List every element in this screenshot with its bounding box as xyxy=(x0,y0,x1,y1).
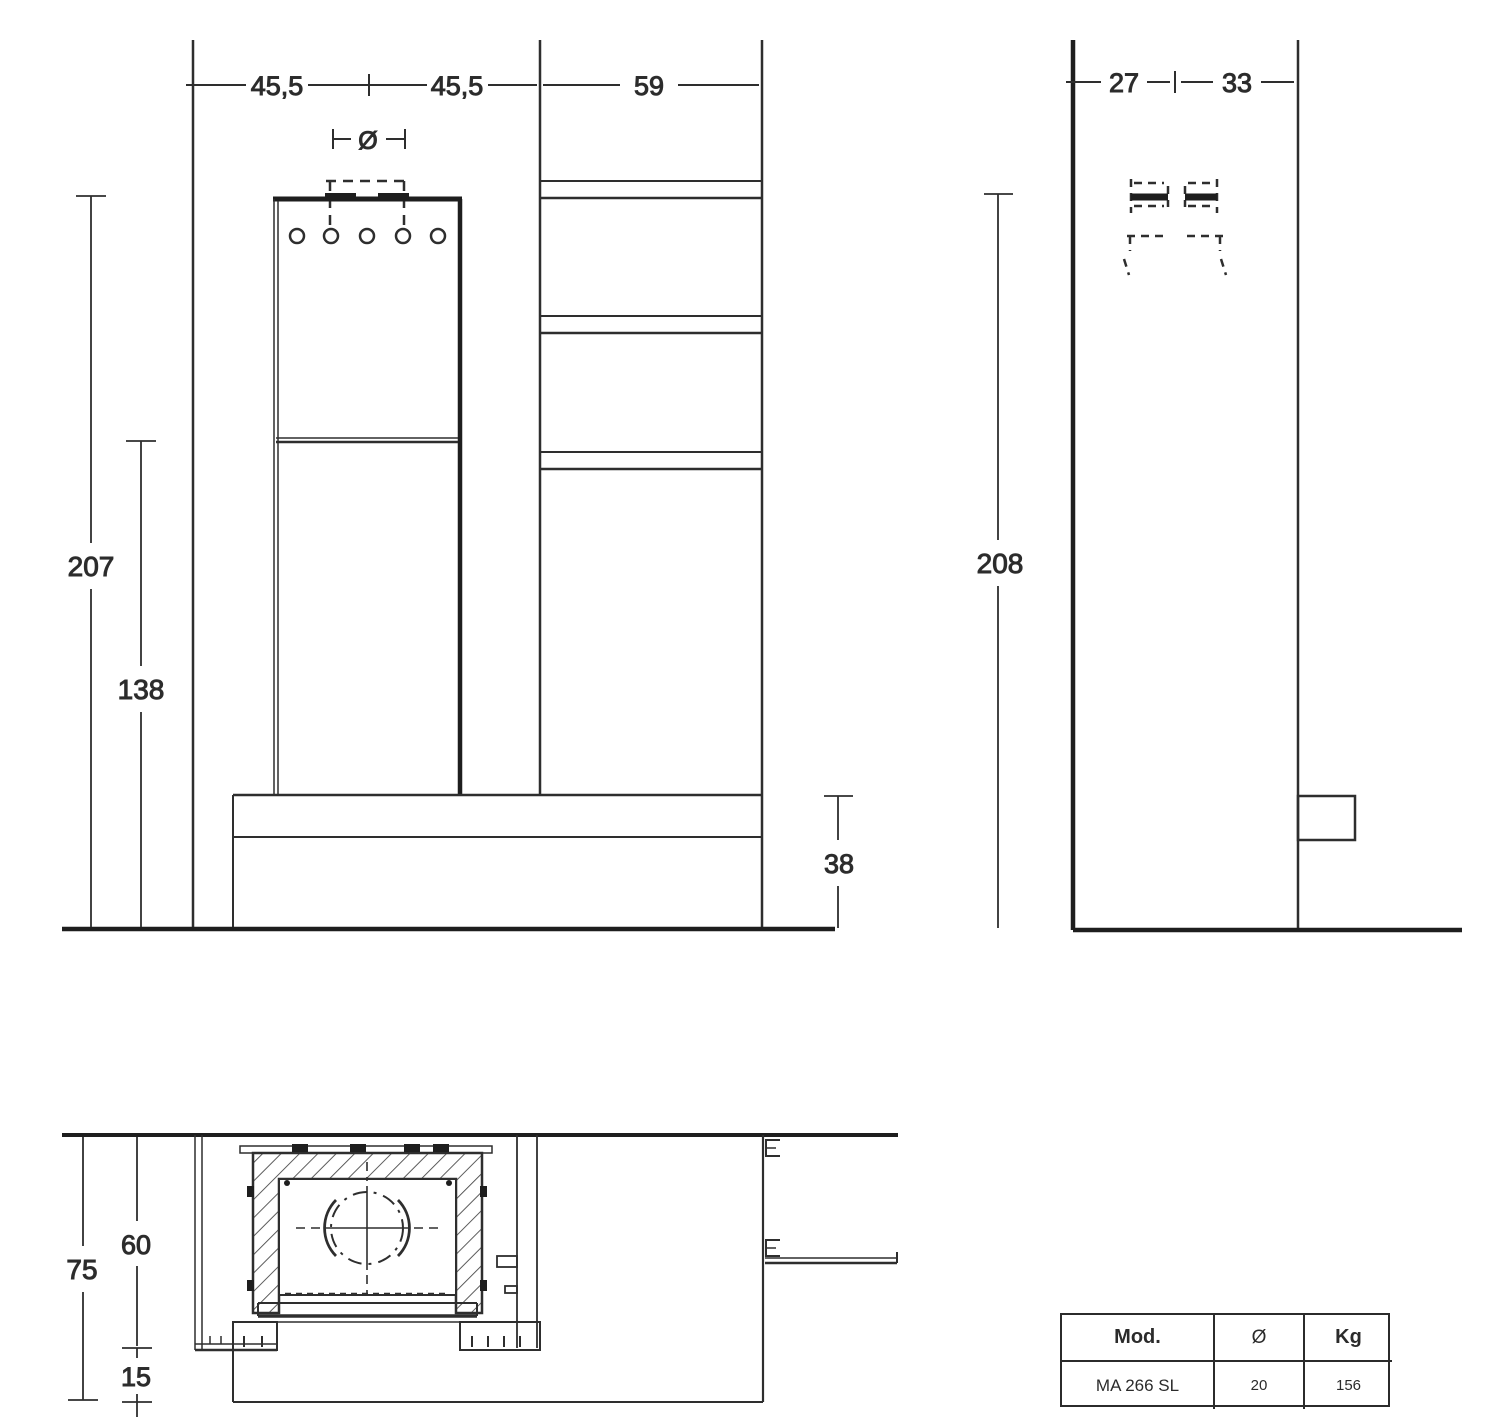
stove-front-outline xyxy=(273,199,462,795)
stove-vent-holes xyxy=(290,229,445,243)
firebox-lid-band xyxy=(240,1144,492,1153)
front-width-right-label: 45,5 xyxy=(431,71,484,101)
firebox-glass-front xyxy=(258,1294,477,1322)
side-view: 27 33 xyxy=(977,40,1462,930)
fireplace-dimension-drawing: 45,5 45,5 59 Ø xyxy=(0,0,1500,1427)
plan-foot-blocks xyxy=(233,1322,540,1350)
firebox-height-label: 138 xyxy=(118,674,165,705)
side-depth-rear-label: 33 xyxy=(1222,68,1252,98)
total-height-label: 207 xyxy=(68,551,115,582)
plan-bench-outline xyxy=(233,1350,763,1402)
plan-bench-depth-label: 15 xyxy=(121,1362,151,1392)
spec-value-weight: 156 xyxy=(1305,1362,1392,1409)
spec-header-mod: Mod. xyxy=(1062,1315,1215,1362)
plan-view: 75 60 15 xyxy=(62,1135,898,1417)
technical-drawing-page: 45,5 45,5 59 Ø xyxy=(0,0,1500,1427)
plan-right-section xyxy=(763,1135,897,1402)
front-flue-dashed-outline xyxy=(326,181,409,230)
spec-value-model: MA 266 SL xyxy=(1062,1362,1215,1409)
side-depth-dimension xyxy=(1066,71,1294,93)
bench-height-label: 38 xyxy=(824,849,854,879)
bench-side-profile xyxy=(1298,796,1355,840)
right-column-bands xyxy=(540,181,762,469)
front-view: 45,5 45,5 59 Ø xyxy=(62,40,854,929)
front-column-width-label: 59 xyxy=(634,71,664,101)
side-depth-front-label: 27 xyxy=(1109,68,1139,98)
spec-value-diameter: 20 xyxy=(1215,1362,1305,1409)
front-width-left-label: 45,5 xyxy=(251,71,304,101)
spec-header-diameter: Ø xyxy=(1215,1315,1305,1362)
spec-table: Mod. Ø Kg MA 266 SL 20 156 xyxy=(1060,1313,1390,1407)
bench-front-outline xyxy=(233,795,762,929)
spec-header-weight: Kg xyxy=(1305,1315,1392,1362)
plan-total-depth-label: 75 xyxy=(66,1254,97,1285)
side-flue-dashed-outline xyxy=(1124,179,1226,275)
side-height-label: 208 xyxy=(977,548,1024,579)
flue-diameter-symbol: Ø xyxy=(358,127,377,155)
plan-recess-depth-label: 60 xyxy=(121,1230,151,1260)
plan-right-enclosure xyxy=(497,1135,537,1348)
